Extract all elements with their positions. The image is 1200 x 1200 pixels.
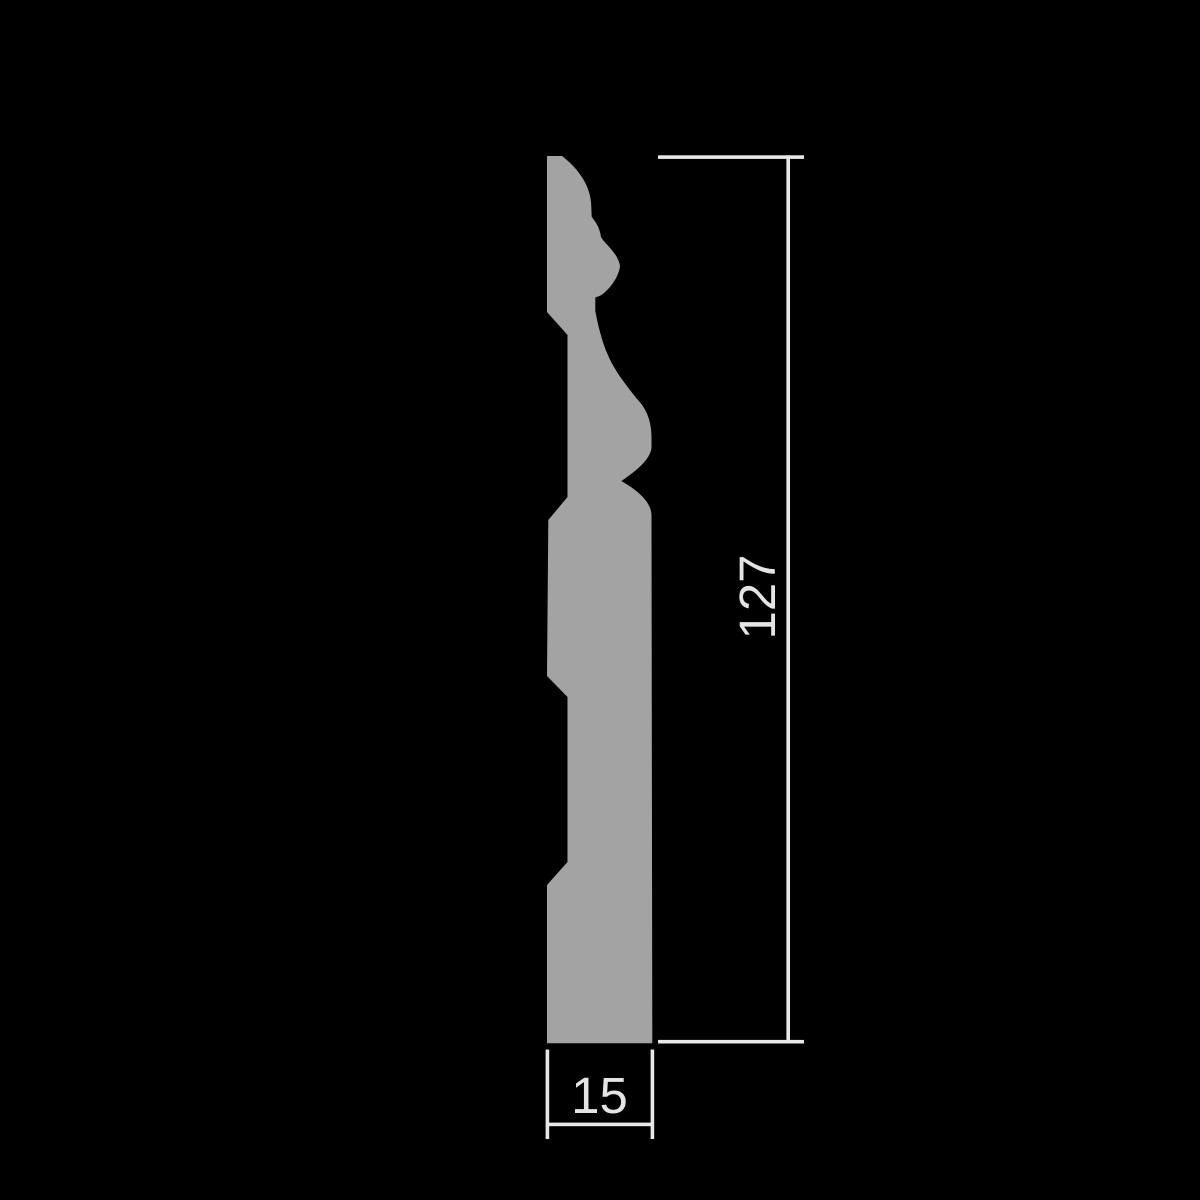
svg-text:15: 15: [571, 1067, 628, 1124]
svg-text:127: 127: [729, 554, 786, 639]
